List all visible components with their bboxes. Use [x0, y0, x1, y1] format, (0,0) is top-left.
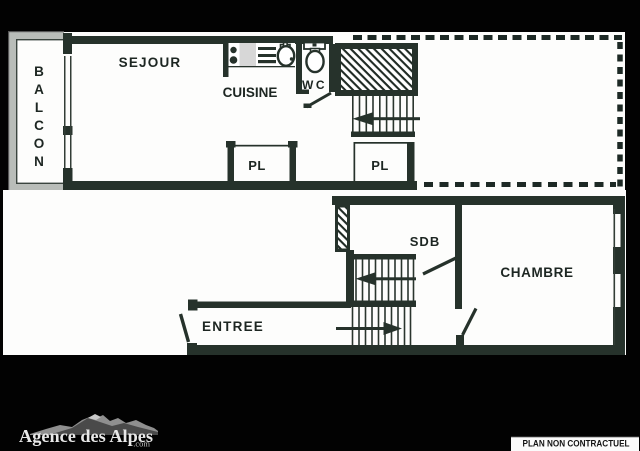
svg-text:C: C	[34, 118, 44, 133]
svg-text:L: L	[35, 100, 43, 115]
svg-text:CHAMBRE: CHAMBRE	[500, 265, 573, 280]
svg-text:ENTREE: ENTREE	[202, 319, 264, 334]
svg-text:N: N	[34, 154, 44, 169]
svg-text:CUISINE: CUISINE	[223, 85, 278, 100]
svg-text:WC: WC	[302, 78, 327, 92]
svg-text:O: O	[34, 136, 45, 151]
svg-text:A: A	[34, 82, 44, 97]
svg-text:SEJOUR: SEJOUR	[119, 55, 182, 70]
svg-text:PL: PL	[371, 158, 388, 173]
svg-text:PLAN NON CONTRACTUEL: PLAN NON CONTRACTUEL	[523, 439, 630, 449]
svg-text:SDB: SDB	[410, 234, 440, 249]
svg-text:.com: .com	[133, 439, 150, 449]
svg-text:PL: PL	[248, 158, 265, 173]
svg-text:B: B	[34, 64, 44, 79]
